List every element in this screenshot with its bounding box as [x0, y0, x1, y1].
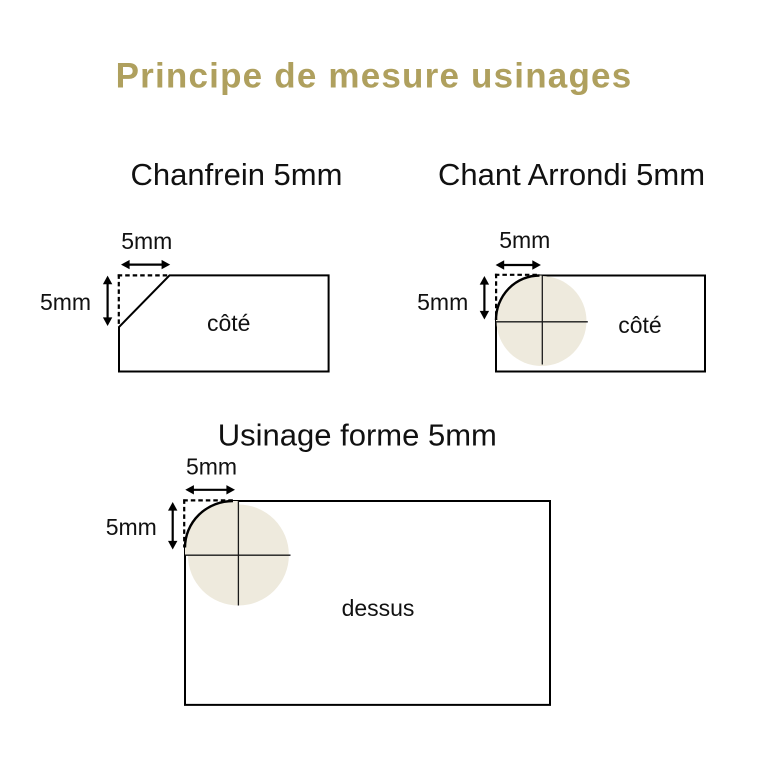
svg-text:Usinage forme 5mm: Usinage forme 5mm	[218, 417, 497, 452]
svg-text:côté: côté	[618, 312, 661, 338]
svg-text:5mm: 5mm	[121, 228, 172, 254]
svg-text:5mm: 5mm	[40, 289, 91, 315]
svg-text:5mm: 5mm	[417, 289, 468, 315]
svg-text:dessus: dessus	[342, 595, 415, 621]
svg-text:côté: côté	[207, 310, 250, 336]
svg-text:Chant Arrondi 5mm: Chant Arrondi 5mm	[438, 157, 705, 192]
svg-text:Chanfrein 5mm: Chanfrein 5mm	[131, 157, 343, 192]
svg-text:5mm: 5mm	[106, 514, 157, 540]
svg-text:5mm: 5mm	[186, 454, 237, 480]
svg-text:5mm: 5mm	[499, 227, 550, 253]
svg-text:Principe de mesure usinages: Principe de mesure usinages	[116, 57, 633, 96]
